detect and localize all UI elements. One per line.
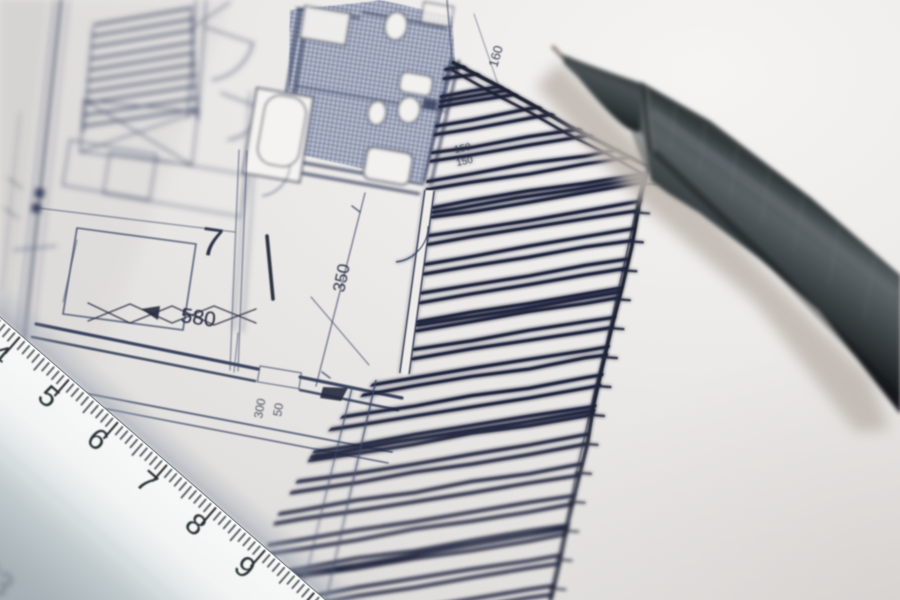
svg-text:580: 580	[179, 304, 217, 332]
svg-text:50: 50	[270, 402, 286, 418]
